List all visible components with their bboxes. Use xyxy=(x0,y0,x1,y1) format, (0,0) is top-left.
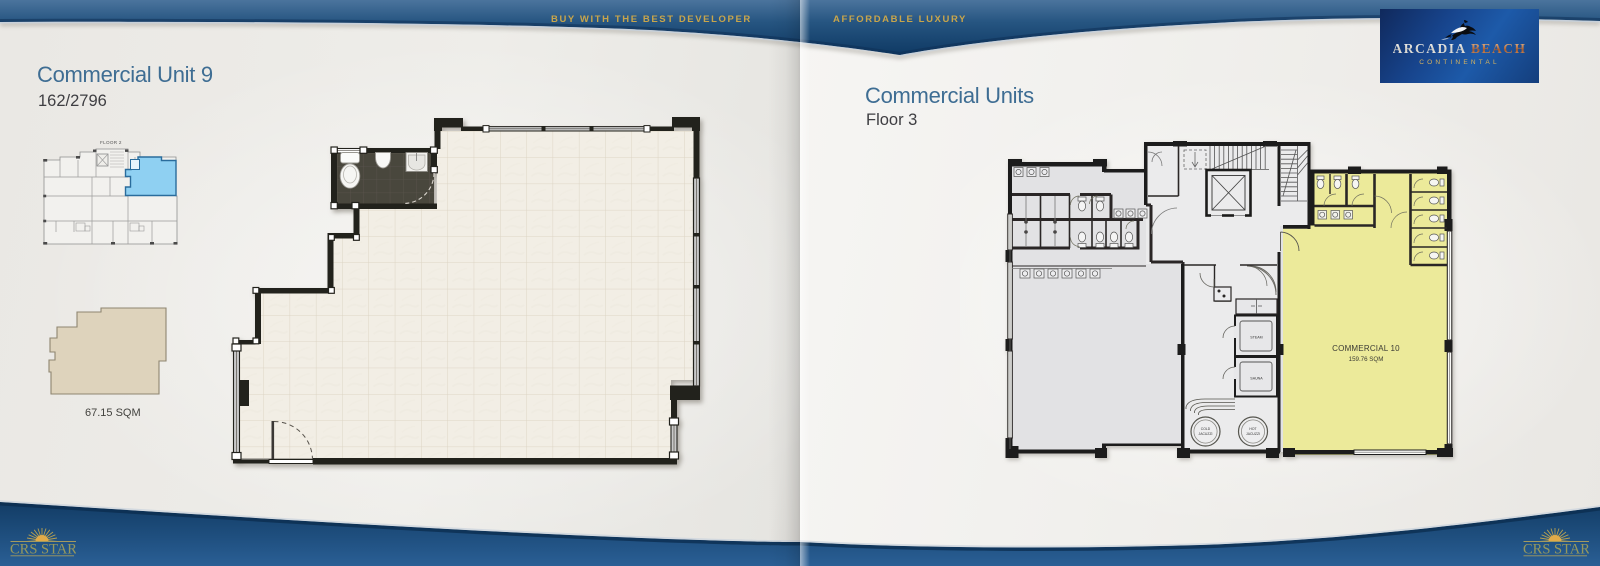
svg-text:159.76 SQM: 159.76 SQM xyxy=(1349,356,1384,363)
svg-text:CRS STAR: CRS STAR xyxy=(1523,542,1589,558)
svg-text:JACUZZI: JACUZZI xyxy=(1246,432,1260,436)
svg-text:COLD: COLD xyxy=(1201,427,1211,431)
svg-text:JACUZZI: JACUZZI xyxy=(1199,432,1213,436)
svg-text:STEAM: STEAM xyxy=(1250,336,1262,340)
svg-text:COMMERCIAL 10: COMMERCIAL 10 xyxy=(1332,344,1400,353)
svg-text:SAUNA: SAUNA xyxy=(1250,377,1263,381)
svg-text:CRS STAR: CRS STAR xyxy=(10,542,76,558)
svg-text:HOT: HOT xyxy=(1249,427,1256,431)
